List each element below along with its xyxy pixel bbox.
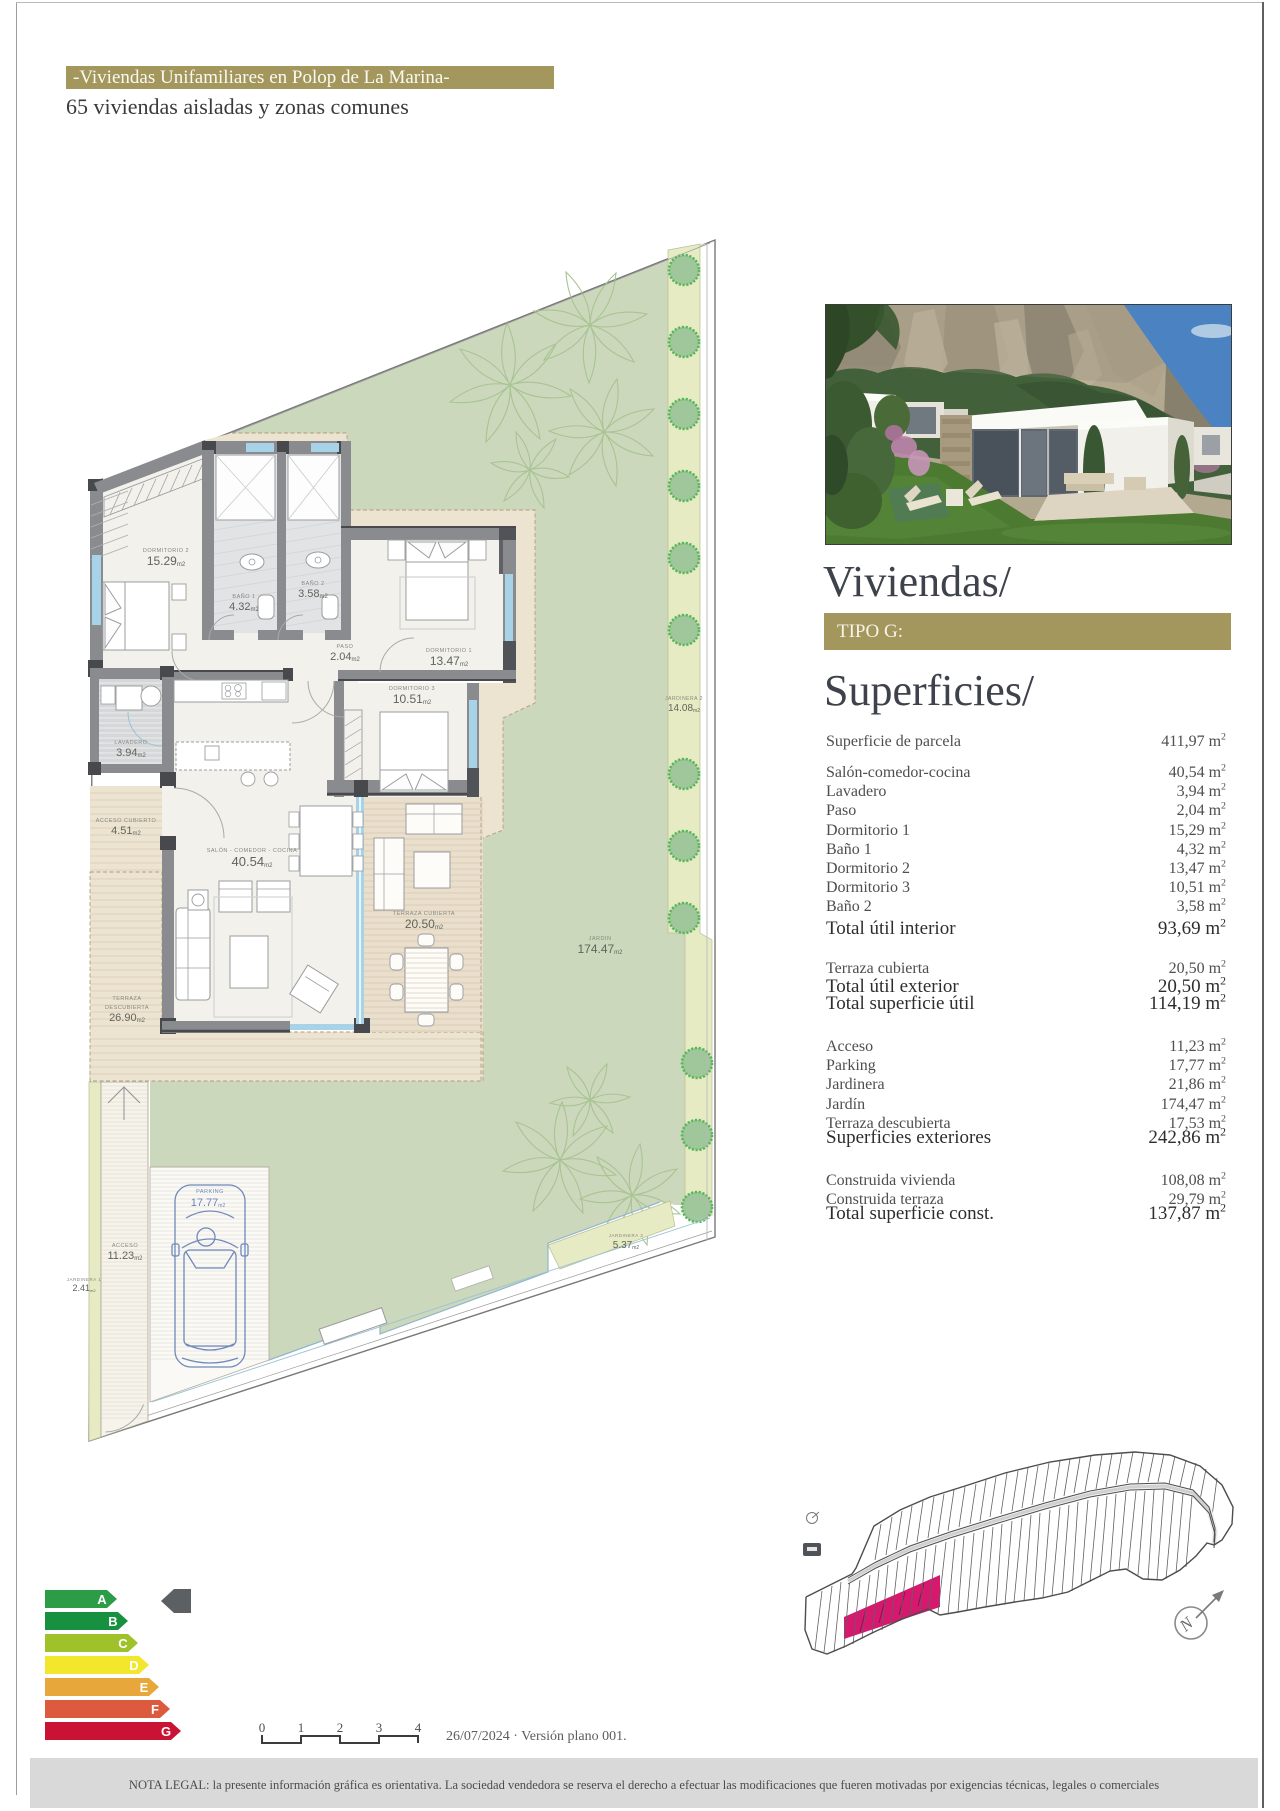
svg-text:JARDINERA 1: JARDINERA 1	[67, 1277, 102, 1282]
svg-text:LAVADERO: LAVADERO	[114, 740, 147, 746]
svg-text:ACCESO CUBIERTO: ACCESO CUBIERTO	[96, 818, 157, 824]
svg-text:ACCESO: ACCESO	[112, 1243, 138, 1249]
svg-text:G: G	[161, 1724, 171, 1739]
svg-text:3: 3	[376, 1720, 383, 1735]
svg-text:A: A	[97, 1592, 107, 1607]
svg-text:PARKING: PARKING	[196, 1189, 224, 1195]
svg-text:SALÓN - COMEDOR - COCINA: SALÓN - COMEDOR - COCINA	[207, 847, 298, 854]
svg-text:D: D	[129, 1658, 138, 1673]
svg-text:1: 1	[298, 1720, 305, 1735]
svg-text:0: 0	[259, 1720, 266, 1735]
svg-text:TERRAZA: TERRAZA	[112, 996, 141, 1002]
svg-text:E: E	[140, 1680, 149, 1695]
svg-text:DESCUBIERTA: DESCUBIERTA	[105, 1005, 149, 1011]
svg-text:JARDINERA 3: JARDINERA 3	[609, 1233, 644, 1238]
svg-text:BAÑO 2: BAÑO 2	[301, 580, 324, 587]
svg-text:B: B	[108, 1614, 117, 1629]
svg-text:PASO: PASO	[337, 644, 354, 650]
svg-text:JARDINERA 2: JARDINERA 2	[665, 696, 703, 702]
svg-text:4: 4	[415, 1720, 422, 1735]
svg-text:F: F	[151, 1702, 159, 1717]
svg-text:C: C	[118, 1636, 128, 1651]
svg-text:BAÑO 1: BAÑO 1	[232, 593, 255, 600]
svg-text:2: 2	[337, 1720, 344, 1735]
